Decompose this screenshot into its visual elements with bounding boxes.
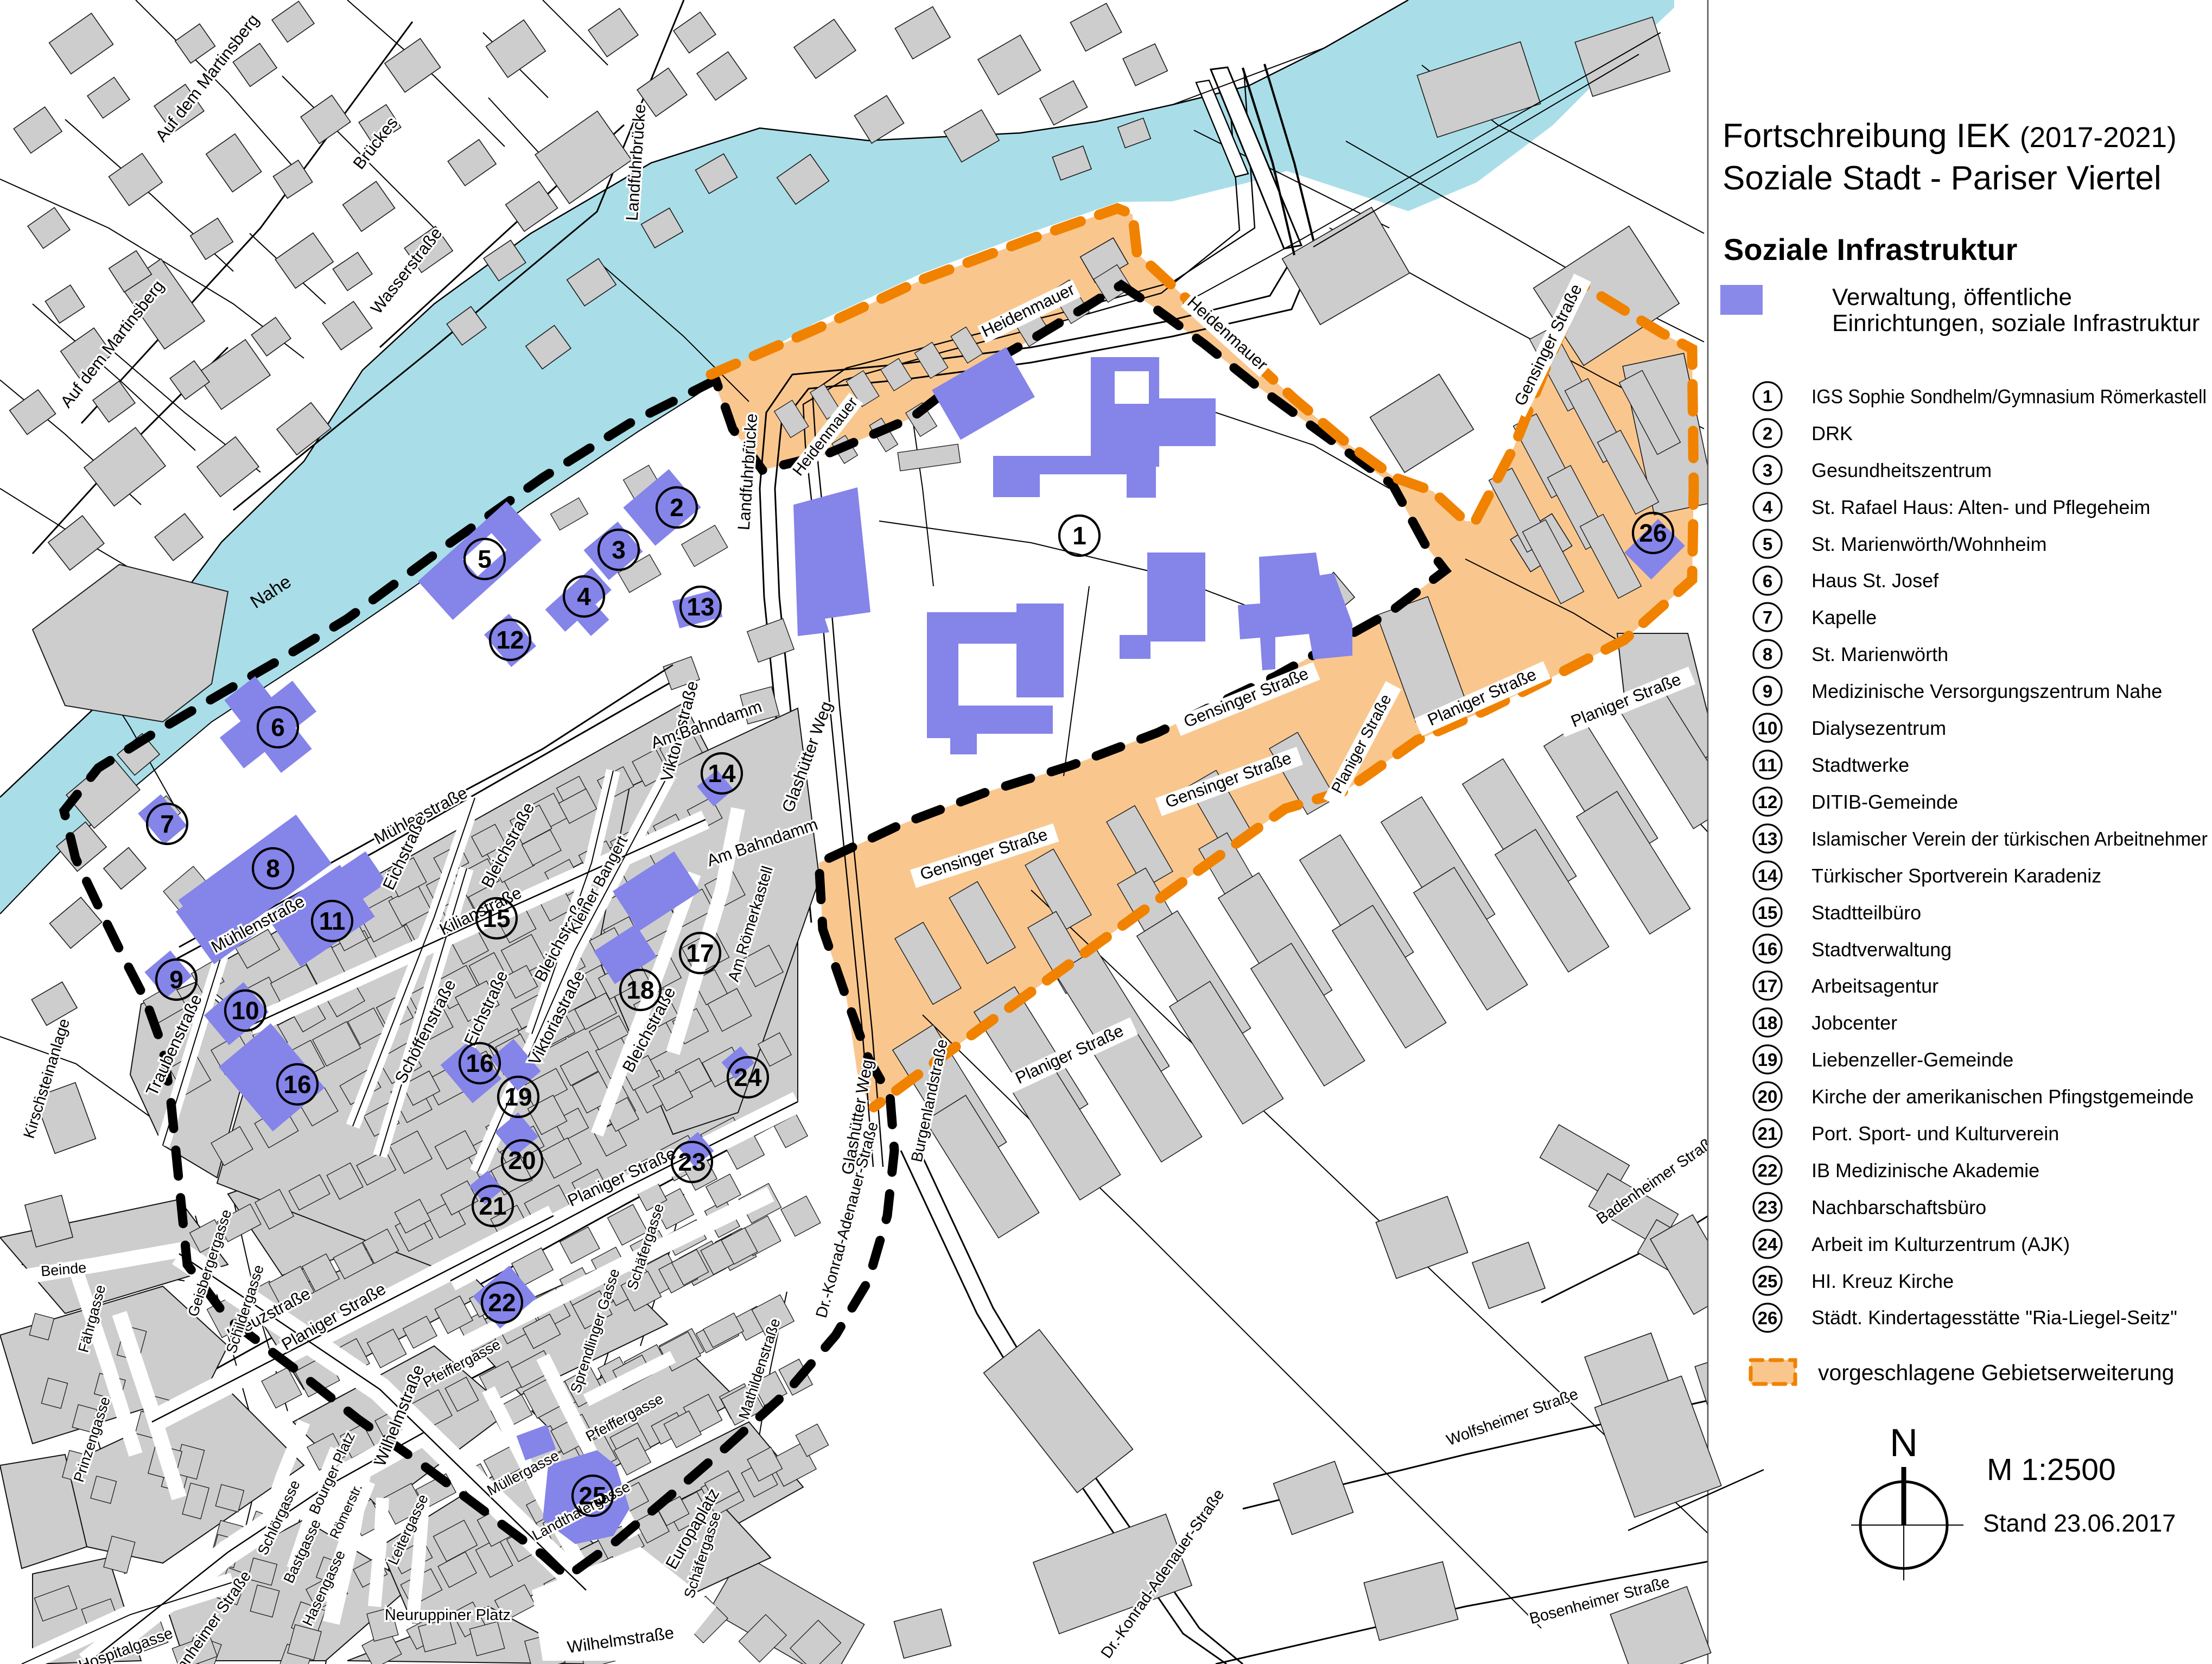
- svg-text:16: 16: [466, 1049, 493, 1077]
- svg-text:St. Marienwörth/Wohnheim: St. Marienwörth/Wohnheim: [1811, 533, 2047, 555]
- svg-text:13: 13: [687, 593, 714, 621]
- svg-text:IB Medizinische Akademie: IB Medizinische Akademie: [1811, 1159, 2039, 1182]
- svg-text:9: 9: [1763, 681, 1772, 701]
- svg-text:14: 14: [708, 759, 736, 787]
- svg-text:Nachbarschaftsbüro: Nachbarschaftsbüro: [1811, 1196, 1986, 1218]
- svg-text:7: 7: [1763, 607, 1772, 627]
- svg-text:1: 1: [1763, 386, 1772, 407]
- svg-text:25: 25: [579, 1482, 606, 1510]
- svg-text:vorgeschlagene Gebietserweiter: vorgeschlagene Gebietserweiterung: [1818, 1360, 2174, 1385]
- svg-text:19: 19: [504, 1083, 532, 1111]
- svg-text:4: 4: [577, 582, 591, 611]
- svg-text:2: 2: [670, 493, 684, 522]
- svg-text:Stand 23.06.2017: Stand 23.06.2017: [1983, 1509, 2176, 1537]
- svg-text:5: 5: [478, 545, 492, 573]
- svg-text:6: 6: [1763, 571, 1772, 591]
- svg-text:DITIB-Gemeinde: DITIB-Gemeinde: [1811, 791, 1958, 813]
- svg-text:DRK: DRK: [1811, 422, 1853, 444]
- svg-text:24: 24: [1758, 1234, 1778, 1254]
- svg-text:Haus St. Josef: Haus St. Josef: [1811, 569, 1939, 592]
- svg-text:11: 11: [1758, 755, 1777, 775]
- svg-text:10: 10: [231, 996, 259, 1025]
- svg-text:6: 6: [271, 713, 285, 741]
- svg-text:15: 15: [1758, 903, 1778, 923]
- svg-text:HI. Kreuz Kirche: HI. Kreuz Kirche: [1811, 1270, 1954, 1292]
- svg-text:18: 18: [626, 976, 654, 1004]
- svg-text:9: 9: [169, 966, 183, 994]
- svg-text:Gesundheitszentrum: Gesundheitszentrum: [1811, 459, 1992, 481]
- svg-text:Port. Sport- und Kulturverein: Port. Sport- und Kulturverein: [1811, 1122, 2059, 1145]
- svg-text:3: 3: [612, 536, 626, 564]
- svg-text:2: 2: [1763, 423, 1772, 443]
- svg-text:Arbeit im Kulturzentrum (AJK): Arbeit im Kulturzentrum (AJK): [1811, 1233, 2070, 1255]
- svg-text:3: 3: [1763, 460, 1772, 480]
- svg-text:Arbeitsagentur: Arbeitsagentur: [1811, 975, 1938, 997]
- svg-text:22: 22: [1758, 1160, 1778, 1180]
- svg-text:14: 14: [1758, 866, 1778, 886]
- svg-text:21: 21: [1758, 1123, 1778, 1144]
- svg-text:18: 18: [1758, 1013, 1778, 1033]
- svg-text:Stadtteilbüro: Stadtteilbüro: [1811, 901, 1921, 924]
- svg-text:M 1:2500: M 1:2500: [1987, 1452, 2116, 1487]
- svg-text:Soziale Stadt - Pariser Vierte: Soziale Stadt - Pariser Viertel: [1722, 160, 2162, 197]
- svg-text:23: 23: [678, 1148, 705, 1176]
- svg-text:12: 12: [496, 626, 524, 654]
- svg-text:4: 4: [1763, 497, 1773, 517]
- svg-text:16: 16: [283, 1070, 311, 1098]
- svg-text:25: 25: [1758, 1271, 1778, 1291]
- svg-text:15: 15: [482, 904, 510, 932]
- svg-text:20: 20: [1758, 1087, 1778, 1107]
- svg-text:Einrichtungen, soziale Infrast: Einrichtungen, soziale Infrastruktur: [1832, 310, 2200, 336]
- svg-text:21: 21: [479, 1192, 506, 1220]
- svg-text:13: 13: [1758, 829, 1778, 849]
- svg-text:IGS Sophie Sondhelm/Gymnasium: IGS Sophie Sondhelm/Gymnasium Römerkaste…: [1811, 385, 2207, 408]
- svg-text:22: 22: [488, 1288, 516, 1317]
- svg-text:St. Rafael Haus: Alten- und Pf: St. Rafael Haus: Alten- und Pflegeheim: [1811, 496, 2150, 518]
- svg-text:8: 8: [1763, 644, 1772, 664]
- svg-text:26: 26: [1758, 1308, 1778, 1328]
- svg-text:11: 11: [319, 907, 346, 935]
- svg-text:Neuruppiner Platz: Neuruppiner Platz: [385, 1606, 511, 1624]
- svg-text:23: 23: [1758, 1197, 1778, 1217]
- svg-text:8: 8: [266, 854, 280, 882]
- svg-text:N: N: [1890, 1421, 1918, 1465]
- svg-text:Liebenzeller-Gemeinde: Liebenzeller-Gemeinde: [1811, 1049, 2013, 1071]
- svg-text:Medizinische Versorgungszentru: Medizinische Versorgungszentrum Nahe: [1811, 680, 2162, 702]
- svg-text:Kirche der amerikanischen Pfin: Kirche der amerikanischen Pfingstgemeind…: [1811, 1085, 2194, 1108]
- svg-text:St. Marienwörth: St. Marienwörth: [1811, 643, 1948, 665]
- svg-text:Dialysezentrum: Dialysezentrum: [1811, 717, 1946, 739]
- svg-text:Soziale Infrastruktur: Soziale Infrastruktur: [1724, 232, 2017, 266]
- svg-text:Fortschreibung IEK (2017-2021): Fortschreibung IEK (2017-2021): [1722, 117, 2177, 155]
- svg-text:17: 17: [686, 939, 714, 967]
- svg-text:17: 17: [1758, 976, 1778, 996]
- svg-text:26: 26: [1639, 519, 1667, 547]
- svg-text:Verwaltung, öffentliche: Verwaltung, öffentliche: [1832, 284, 2072, 310]
- svg-text:7: 7: [160, 810, 174, 838]
- svg-text:Türkischer Sportverein Karaden: Türkischer Sportverein Karadeniz: [1811, 865, 2101, 887]
- svg-text:1: 1: [1072, 522, 1086, 550]
- svg-text:Stadtverwaltung: Stadtverwaltung: [1811, 938, 1952, 961]
- svg-text:Städt. Kindertagesstätte "Ria-: Städt. Kindertagesstätte "Ria-Liegel-Sei…: [1811, 1306, 2177, 1329]
- svg-text:Stadtwerke: Stadtwerke: [1811, 754, 1909, 776]
- svg-text:16: 16: [1758, 939, 1778, 959]
- svg-text:19: 19: [1758, 1050, 1778, 1070]
- svg-text:12: 12: [1758, 792, 1778, 812]
- svg-text:10: 10: [1758, 718, 1778, 738]
- svg-text:Kapelle: Kapelle: [1811, 606, 1877, 628]
- svg-text:24: 24: [734, 1063, 762, 1091]
- svg-text:Islamischer Verein der türkisc: Islamischer Verein der türkischen Arbeit…: [1811, 828, 2208, 850]
- svg-text:Jobcenter: Jobcenter: [1811, 1012, 1897, 1034]
- svg-text:20: 20: [508, 1146, 536, 1174]
- svg-text:5: 5: [1763, 534, 1772, 554]
